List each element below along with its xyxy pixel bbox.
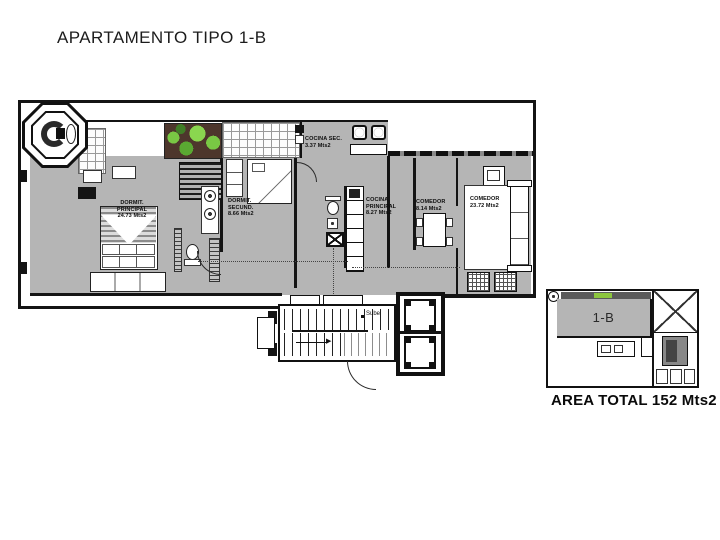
room-label-comedor-1: COMEDOR 8.14 Mts2 xyxy=(416,199,458,212)
sube-marker xyxy=(361,315,364,318)
circulation-line xyxy=(352,267,460,268)
window-band xyxy=(388,151,533,156)
door-swing-arc xyxy=(347,361,376,390)
chair xyxy=(416,218,423,227)
sofa-armrest xyxy=(507,180,532,187)
wall xyxy=(533,100,536,298)
key-elevator-core xyxy=(662,336,688,366)
tv-console xyxy=(483,166,505,186)
key-unit-region: 1-B xyxy=(557,299,652,338)
elevator-car xyxy=(404,299,436,332)
stove-icon xyxy=(349,189,360,198)
direction-arrow xyxy=(296,342,328,343)
bed-pillows xyxy=(102,256,155,268)
room-label-dormit-secund: DORMIT. SECUND. 8.66 Mts2 xyxy=(228,198,254,218)
room-label-dormit-principal: DORMIT. PRINCIPAL 24.73 Mts2 xyxy=(103,200,161,220)
kitchen-counter xyxy=(346,186,364,272)
chair xyxy=(446,237,453,246)
room-label-cocina-sec: COCINA SEC. 3.37 Mts2 xyxy=(305,136,353,149)
arrow-head-icon: ▶ xyxy=(326,338,331,345)
chair xyxy=(446,218,453,227)
upper-terrace xyxy=(388,103,533,152)
burner-icon xyxy=(371,125,386,140)
side-table xyxy=(494,272,517,292)
toilet-icon xyxy=(327,201,339,215)
drawing-canvas: APARTAMENTO TIPO 1-B xyxy=(0,0,720,540)
chair xyxy=(416,237,423,246)
circulation-line xyxy=(198,261,348,262)
room-label-cocina-principal: COCINA PRINCIPAL 8.27 Mts2 xyxy=(366,197,396,217)
stair-direction-label: Sube xyxy=(366,311,380,317)
key-top-bar xyxy=(561,292,651,299)
side-table xyxy=(467,272,490,292)
bed-bench xyxy=(90,272,166,292)
wall xyxy=(30,293,282,296)
room-label-comedor-2: COMEDOR 23.72 Mts2 xyxy=(470,196,514,209)
bed-pillow xyxy=(252,163,265,172)
key-unit-label: 1-B xyxy=(593,310,615,325)
wall xyxy=(18,306,281,309)
nightstand xyxy=(112,166,136,179)
closet xyxy=(226,159,243,197)
wall xyxy=(18,100,536,103)
burner-icon xyxy=(352,125,367,140)
sink-icon xyxy=(204,190,216,202)
planter-garden xyxy=(164,123,222,159)
wall xyxy=(456,248,458,295)
area-total-label: AREA TOTAL 152 Mts2 xyxy=(551,392,717,409)
stair-treads-dashed xyxy=(344,333,390,356)
wall-tick xyxy=(18,262,27,274)
wall xyxy=(86,120,388,122)
shower-icon xyxy=(326,232,344,247)
key-stair-core xyxy=(654,291,697,333)
sink-icon xyxy=(327,218,338,229)
ladder-rack xyxy=(174,228,182,272)
nightstand xyxy=(83,170,102,183)
elevator-car xyxy=(404,336,436,369)
bed-pillows xyxy=(102,244,155,255)
sink-icon xyxy=(204,208,216,220)
wall-tick xyxy=(18,170,27,182)
sofa-armrest xyxy=(507,265,532,272)
circulation-line xyxy=(333,248,334,294)
dining-table xyxy=(423,213,446,247)
page-title: APARTAMENTO TIPO 1-B xyxy=(57,28,267,48)
secondary-bed xyxy=(247,159,292,204)
counter xyxy=(350,144,387,155)
fireplace-block xyxy=(78,187,96,199)
key-garden-green xyxy=(594,293,612,298)
wall xyxy=(18,100,21,309)
stair-treads xyxy=(284,333,342,356)
terrace-tile-grid xyxy=(222,122,300,158)
